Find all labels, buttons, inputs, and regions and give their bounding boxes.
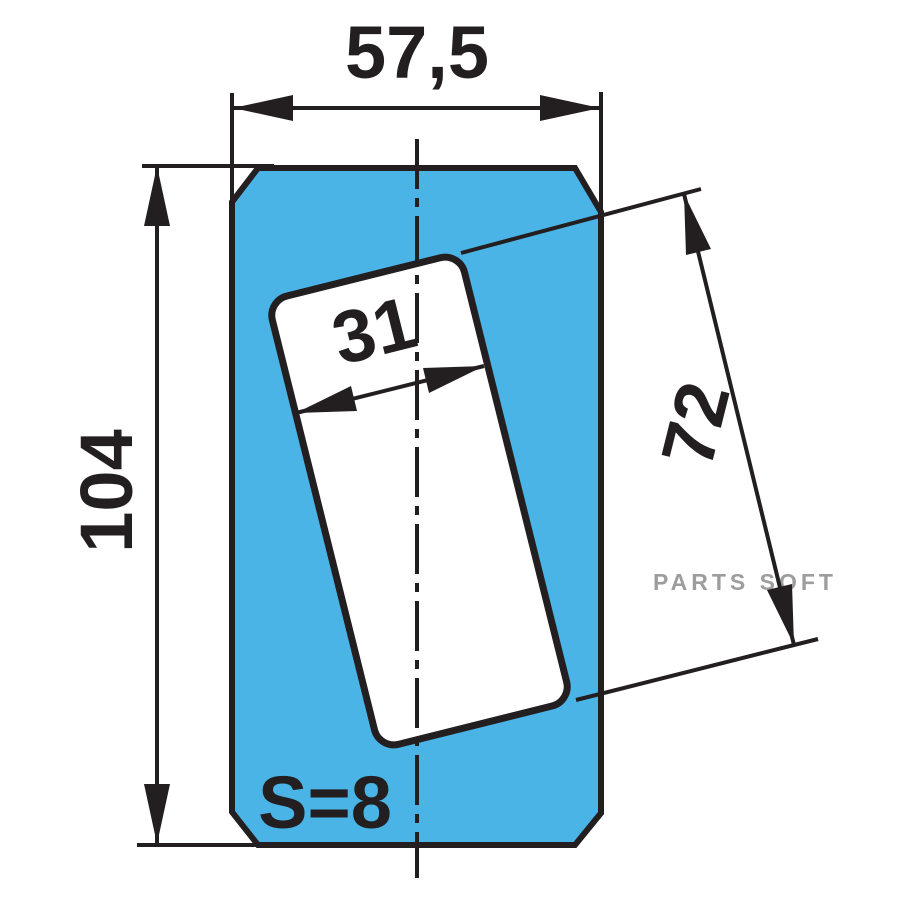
dim-label-overall-width: 57,5 (345, 11, 489, 94)
drawing-canvas: PARTS SOFT 57,5 104 31 72 S=8 (0, 0, 900, 900)
thickness-label: S=8 (258, 761, 392, 844)
watermark-text: PARTS SOFT (653, 569, 837, 595)
dim-label-overall-height: 104 (65, 429, 148, 552)
technical-drawing: PARTS SOFT 57,5 104 31 72 S=8 (0, 0, 900, 900)
